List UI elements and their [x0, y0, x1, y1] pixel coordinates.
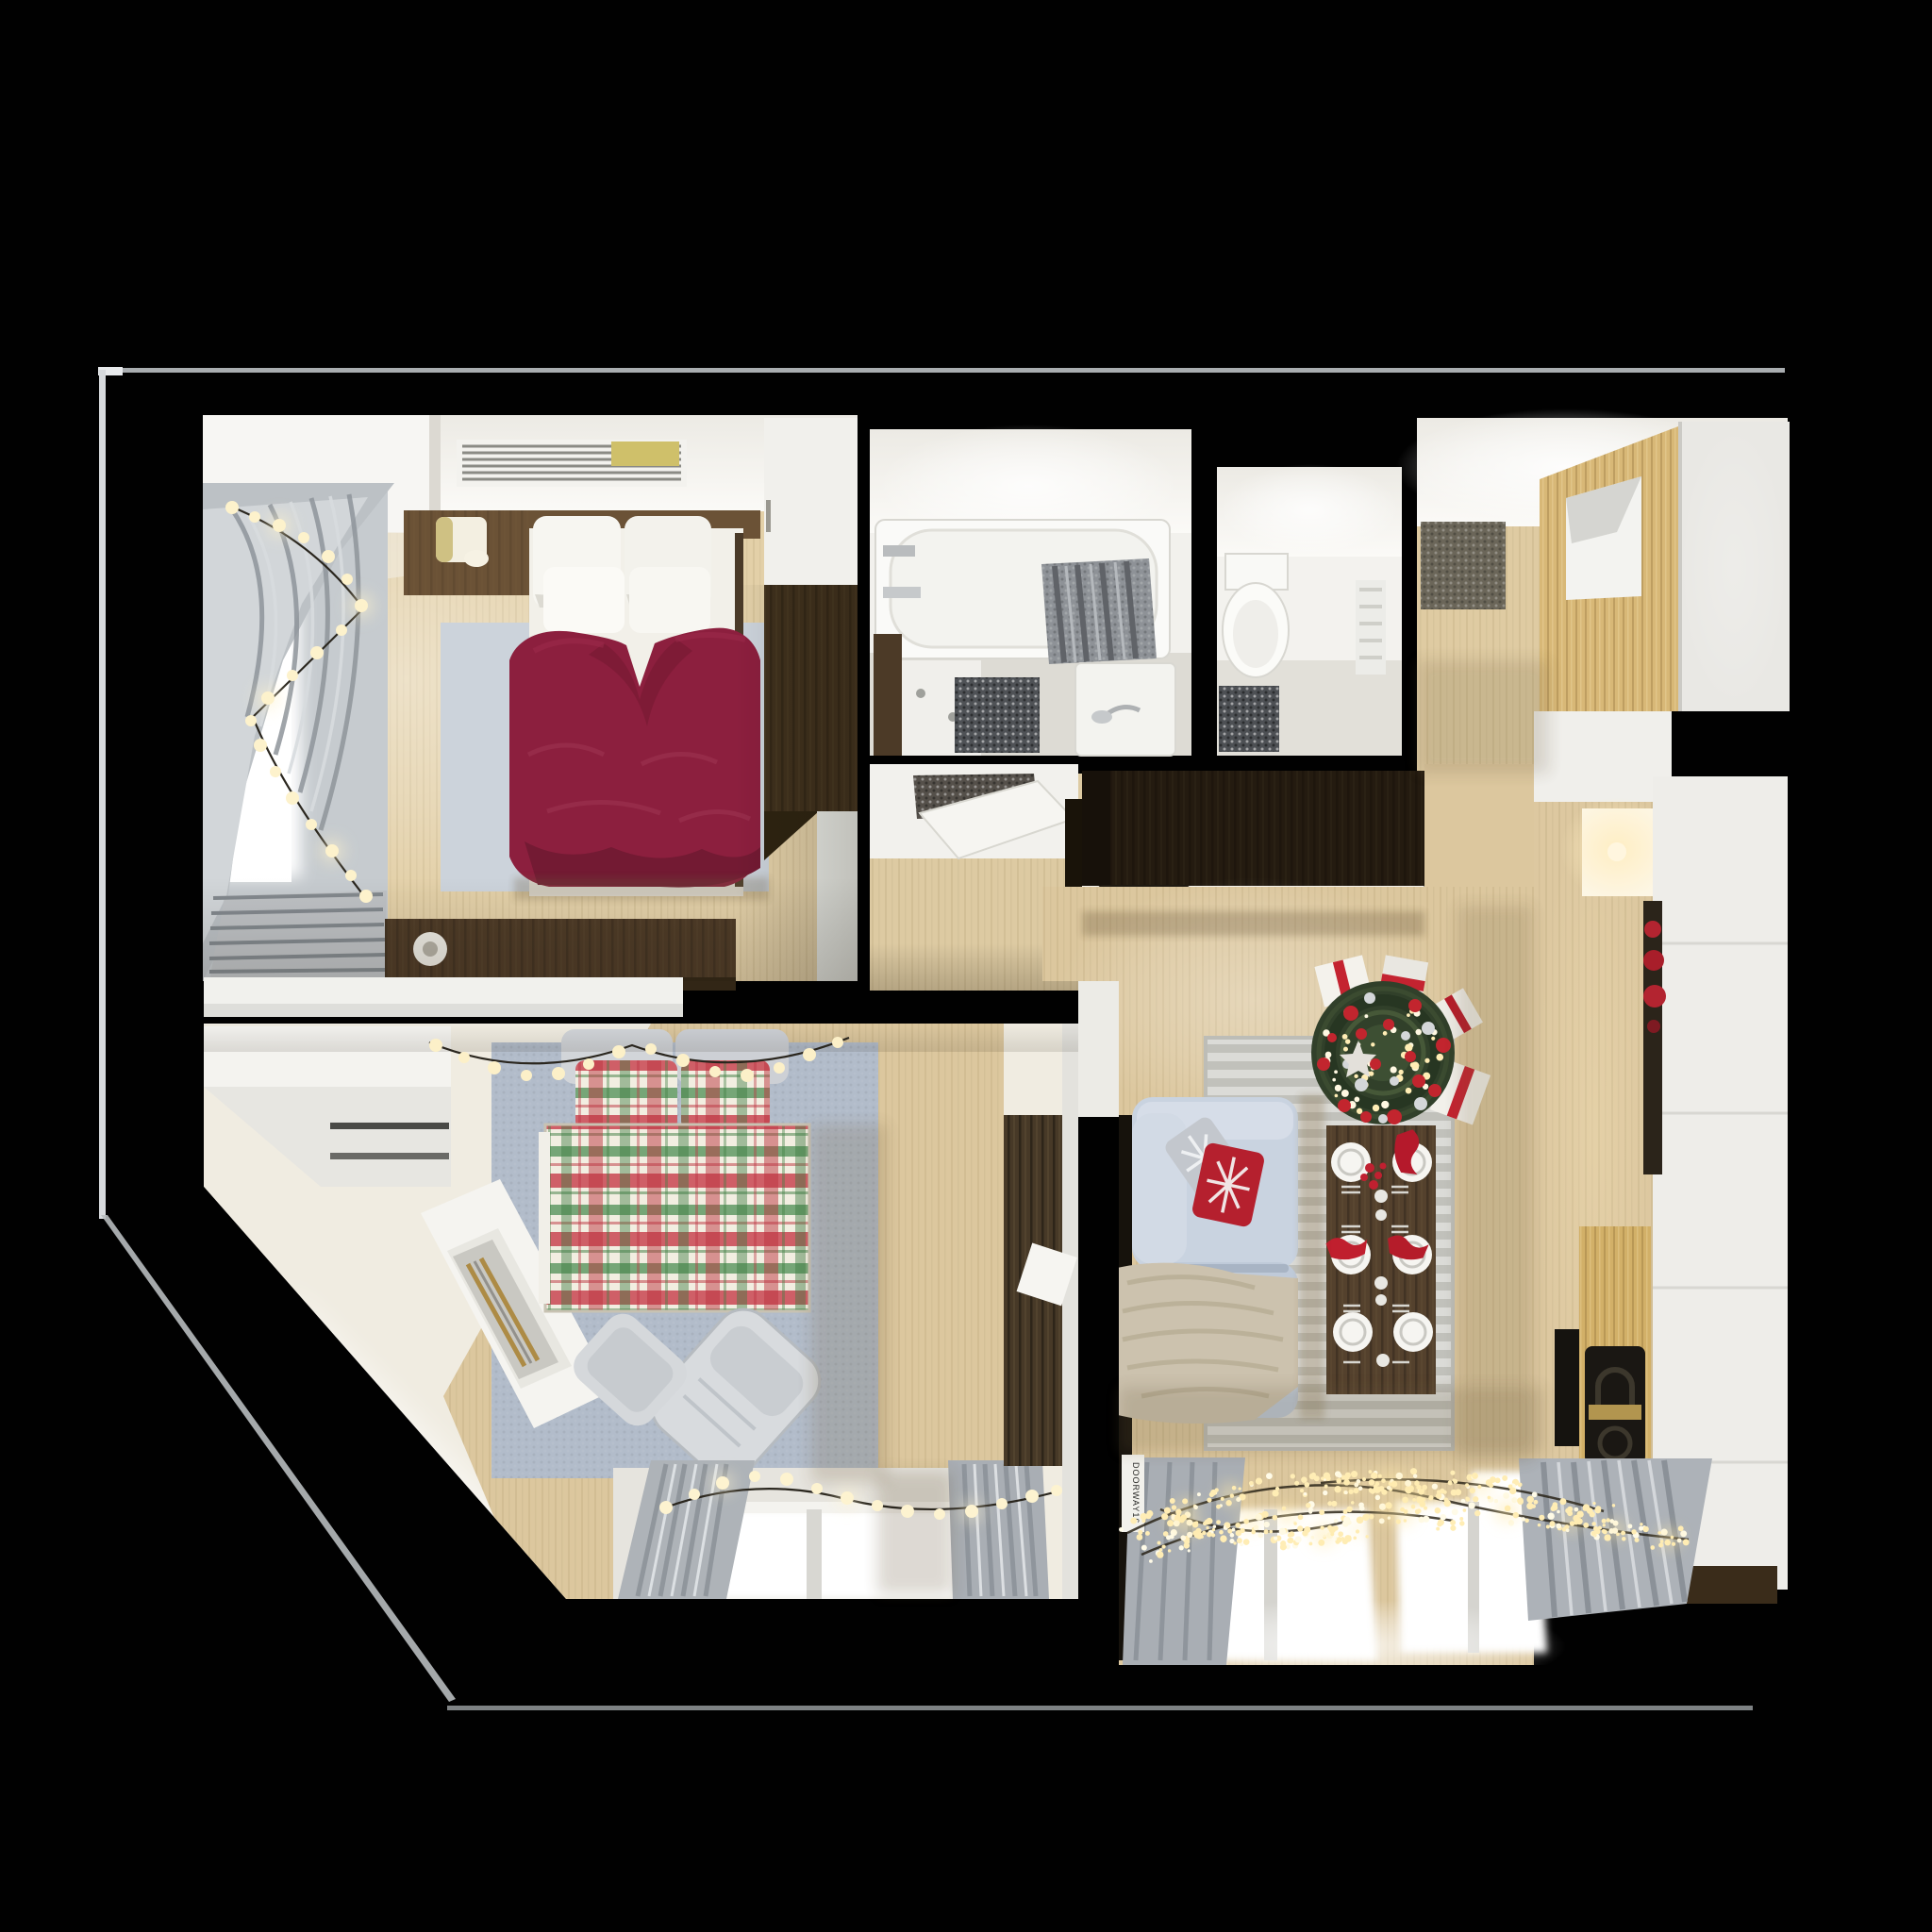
svg-text:DOORWAY16: DOORWAY16	[1131, 1462, 1141, 1524]
